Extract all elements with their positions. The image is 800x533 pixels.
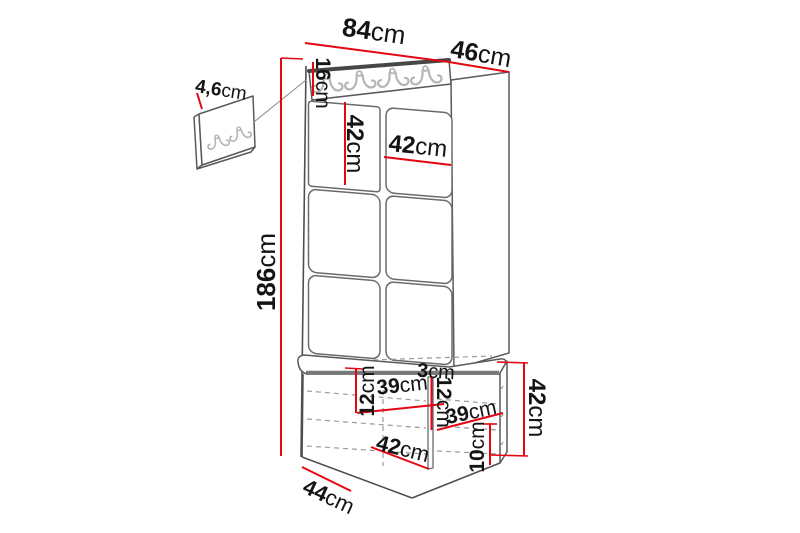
dim-plinth-height: 10cm bbox=[466, 421, 489, 472]
dim-overall-height: 186cm bbox=[251, 233, 281, 311]
bench-side-face bbox=[500, 361, 507, 463]
dim-hanger-thickness: 4,6cm bbox=[194, 76, 248, 105]
wall-panel bbox=[386, 282, 452, 366]
dim-bench-height: 42cm bbox=[524, 379, 551, 438]
dim-overall-depth: 46cm bbox=[448, 35, 513, 73]
wall-panel bbox=[309, 189, 381, 278]
dim-panel-height: 42cm bbox=[342, 115, 369, 174]
dim-overall-width: 84cm bbox=[340, 12, 407, 51]
dim-seat-thickness: 12cm bbox=[356, 365, 379, 416]
wall-panel bbox=[386, 196, 452, 285]
wall-panel bbox=[309, 275, 381, 359]
dim-rail-height: 16cm bbox=[312, 57, 335, 108]
dim-bench-inner-width: 42cm bbox=[374, 429, 432, 466]
wardrobe-side-face bbox=[451, 72, 509, 369]
dimension-diagram: 84cm 46cm 4,6cm 16cm 42cm 42cm 186cm 12c… bbox=[0, 0, 800, 533]
diagram-canvas: 84cm 46cm 4,6cm 16cm 42cm 42cm 186cm 12c… bbox=[0, 0, 800, 533]
